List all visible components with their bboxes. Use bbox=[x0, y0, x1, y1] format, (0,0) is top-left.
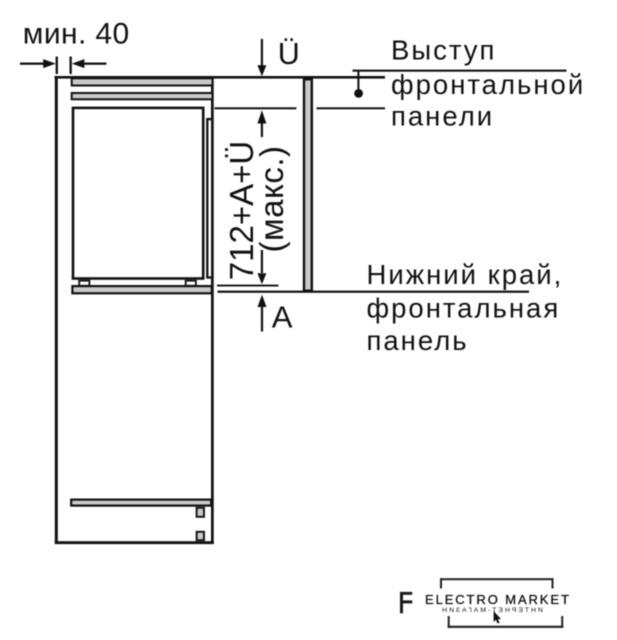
svg-text:мин. 40: мин. 40 bbox=[23, 18, 130, 51]
svg-text:A: A bbox=[272, 300, 293, 335]
svg-text:(макс.): (макс.) bbox=[253, 146, 290, 253]
svg-text:ИНТЕРНЕТ-МАГАЗИН: ИНТЕРНЕТ-МАГАЗИН bbox=[440, 607, 543, 614]
svg-text:Ü: Ü bbox=[278, 37, 300, 71]
svg-text:ELECTRO MARKET: ELECTRO MARKET bbox=[425, 592, 571, 607]
svg-text:Нижний край,: Нижний край, bbox=[367, 259, 564, 290]
svg-text:панели: панели bbox=[391, 101, 494, 132]
svg-text:фронтальной: фронтальной bbox=[391, 69, 585, 100]
svg-text:Выступ: Выступ bbox=[391, 35, 496, 66]
svg-text:фронтальная: фронтальная bbox=[367, 293, 561, 324]
svg-text:панель: панель bbox=[367, 325, 469, 356]
